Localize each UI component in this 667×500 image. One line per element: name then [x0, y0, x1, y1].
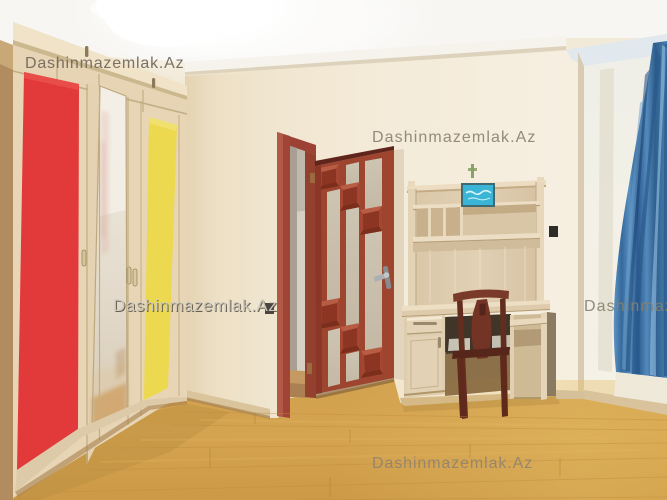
svg-text:Dashinmazemlak.Az: Dashinmazemlak.Az — [113, 296, 277, 315]
svg-text:Dashinmazemlak.Az: Dashinmazemlak.Az — [372, 455, 533, 472]
svg-text:Dashinmazemlak.Az: Dashinmazemlak.Az — [372, 129, 537, 146]
svg-text:Dashinmazemlak.Az: Dashinmazemlak.Az — [584, 298, 667, 315]
svg-text:Dashinmazemlak.Az: Dashinmazemlak.Az — [25, 55, 184, 72]
